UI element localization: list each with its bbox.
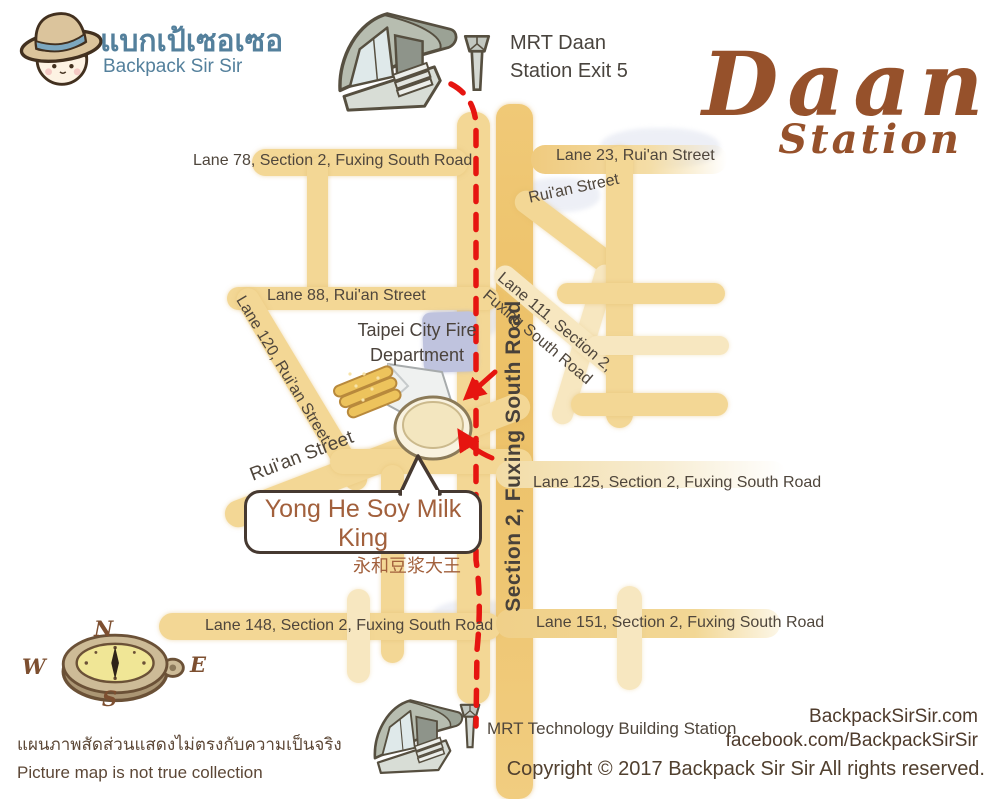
picture-map: แบกเป้เซอเซอ Backpack Sir Sir MRT Daan S… [0,0,1000,799]
compass-east-label: E [190,652,206,677]
compass-north-label: N [94,616,113,641]
callout-tail [388,452,452,496]
backpacker-character-icon [14,6,106,90]
street-label-lane78: Lane 78, Section 2, Fuxing South Road [193,152,472,170]
destination-name-en: Yong He Soy Milk King [247,495,479,553]
compass-icon [45,614,191,712]
mrt-daan-station-icon [336,6,464,116]
street-label-fuxing-main: Section 2, Fuxing South Road [502,291,526,621]
disclaimer-en: Picture map is not true collection [17,763,263,783]
map-title: Daan [702,40,992,128]
disclaimer-thai: แผนภาพสัดส่วนแสดงไม่ตรงกับความเป็นจริง [17,731,342,758]
street-label-lane148: Lane 148, Section 2, Fuxing South Road [205,617,493,635]
street-label-lane120: Lane 120, Rui'an Street [232,293,334,446]
exit-pillar-icon [463,32,491,94]
street-label-lane88: Lane 88, Rui'an Street [267,287,426,305]
mrt-daan-label-line2: Station Exit 5 [510,57,628,85]
road-right-branch-1 [557,283,725,304]
destination-name-zh: 永和豆浆大王 [247,552,479,578]
street-label-lane125: Lane 125, Section 2, Fuxing South Road [533,474,821,492]
map-subtitle: Station [700,116,962,163]
compass-west-label: W [22,654,46,679]
website-text: BackpackSirSir.com [700,706,978,728]
fire-department-label-line1: Taipei City Fire [356,318,478,343]
road-lower-right-vertical [617,586,642,690]
road-lower-left-vertical [347,589,370,683]
mrt-technology-station-icon [372,694,468,778]
street-label-lane23: Lane 23, Rui'an Street [556,147,715,165]
fire-department-label-line2: Department [356,343,478,368]
compass-south-label: S [102,686,117,711]
destination-callout: Yong He Soy Milk King 永和豆浆大王 [244,490,482,554]
brand-name-en: Backpack Sir Sir [103,56,242,78]
facebook-text: facebook.com/BackpackSirSir [700,730,978,752]
street-label-lane151: Lane 151, Section 2, Fuxing South Road [536,614,824,632]
mrt-daan-label-line1: MRT Daan [510,29,628,57]
road-stub-vertical [307,158,328,298]
road-right-branch-3 [571,393,728,416]
exit-pillar-icon [459,700,481,752]
copyright-text: Copyright © 2017 Backpack Sir Sir All ri… [480,758,985,781]
